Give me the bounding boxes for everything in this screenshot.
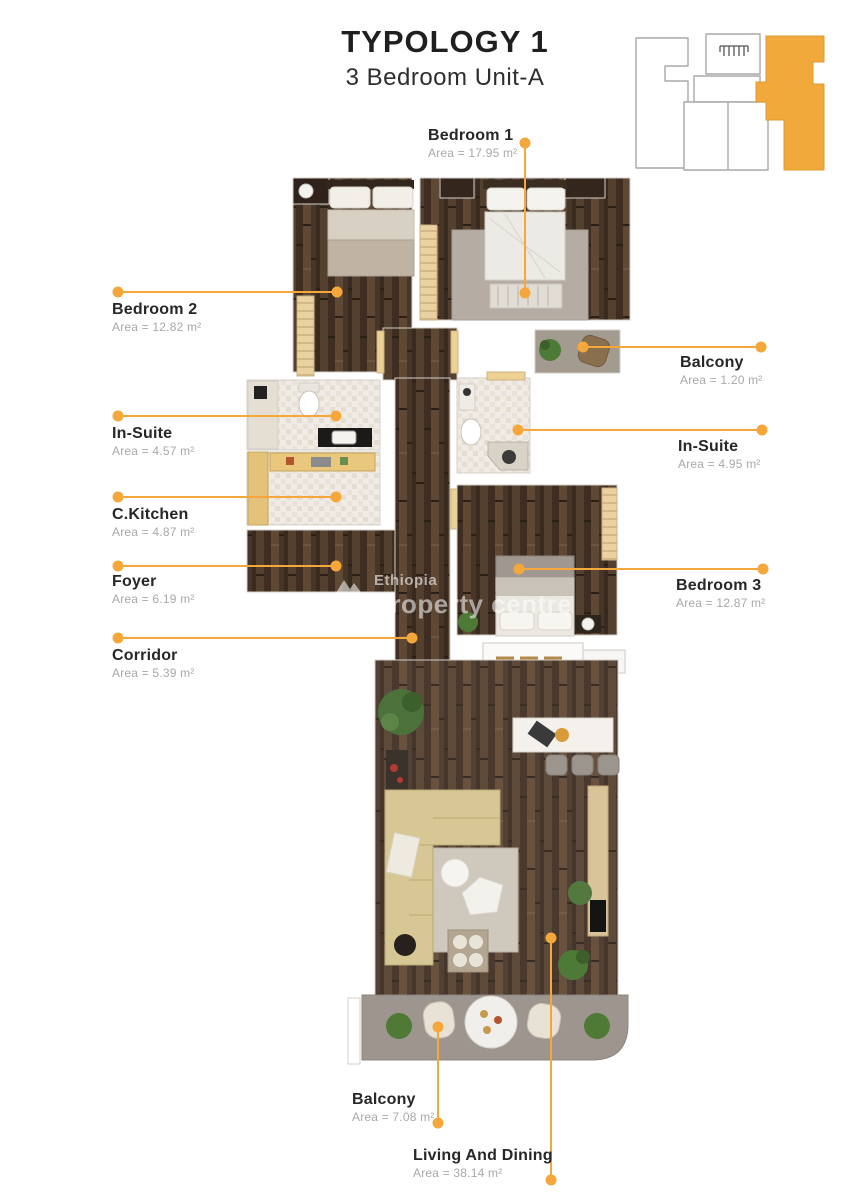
room-name: Corridor (112, 647, 195, 665)
room-name: Bedroom 3 (676, 577, 765, 595)
label-bedroom-1: Bedroom 1 Area = 17.95 m² (428, 127, 517, 161)
room-area: Area = 4.95 m² (678, 458, 761, 472)
label-bedroom-3: Bedroom 3 Area = 12.87 m² (676, 577, 765, 611)
room-area: Area = 12.87 m² (676, 597, 765, 611)
label-foyer: Foyer Area = 6.19 m² (112, 573, 195, 607)
room-name: In-Suite (112, 425, 195, 443)
balcony-bottom (348, 995, 628, 1064)
room-name: Balcony (352, 1091, 435, 1109)
room-area: Area = 1.20 m² (680, 374, 763, 388)
label-corridor: Corridor Area = 5.39 m² (112, 647, 195, 681)
room-name: In-Suite (678, 438, 761, 456)
room-area: Area = 4.57 m² (112, 445, 195, 459)
room-name: Balcony (680, 354, 763, 372)
room-area: Area = 7.08 m² (352, 1111, 435, 1125)
room-area: Area = 38.14 m² (413, 1167, 553, 1181)
label-insuite-left: In-Suite Area = 4.57 m² (112, 425, 195, 459)
label-living-dining: Living And Dining Area = 38.14 m² (413, 1147, 553, 1181)
room-area: Area = 4.87 m² (112, 526, 195, 540)
balcony-top (535, 330, 620, 373)
room-name: C.Kitchen (112, 506, 195, 524)
floorplan-page: TYPOLOGY 1 3 Bedroom Unit-A (0, 0, 848, 1200)
label-balcony-bottom: Balcony Area = 7.08 m² (352, 1091, 435, 1125)
room-area: Area = 12.82 m² (112, 321, 201, 335)
room-area: Area = 5.39 m² (112, 667, 195, 681)
label-bedroom-2: Bedroom 2 Area = 12.82 m² (112, 301, 201, 335)
label-insuite-right: In-Suite Area = 4.95 m² (678, 438, 761, 472)
room-insuite-right (457, 372, 530, 473)
label-balcony-top: Balcony Area = 1.20 m² (680, 354, 763, 388)
room-corridor (377, 328, 458, 660)
room-name: Bedroom 1 (428, 127, 517, 145)
label-kitchen: C.Kitchen Area = 4.87 m² (112, 506, 195, 540)
room-name: Foyer (112, 573, 195, 591)
room-name: Bedroom 2 (112, 301, 201, 319)
room-living-dining (375, 660, 619, 995)
room-name: Living And Dining (413, 1147, 553, 1165)
room-kitchen (247, 452, 380, 525)
room-area: Area = 17.95 m² (428, 147, 517, 161)
room-area: Area = 6.19 m² (112, 593, 195, 607)
room-bedroom-3 (457, 485, 617, 636)
room-foyer (247, 530, 395, 592)
